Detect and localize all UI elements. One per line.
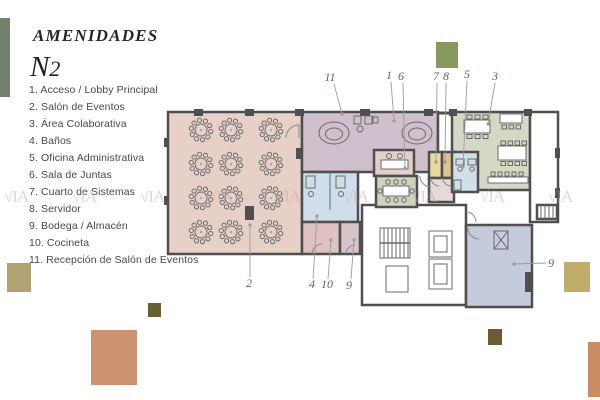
legend-item-8: 8. Servidor <box>29 201 198 218</box>
level-label: N2 <box>30 53 158 82</box>
leader-line <box>514 263 546 264</box>
elevator <box>429 231 452 257</box>
wall-pillar <box>424 109 433 116</box>
chair <box>516 125 521 129</box>
wc-stall <box>306 176 315 188</box>
door-arc <box>312 244 322 254</box>
plan-label-7: 7 <box>433 69 440 83</box>
stool <box>512 172 516 176</box>
lounge-seat <box>373 117 378 123</box>
flyer-page: AMENIDADES N2 1. Acceso / Lobby Principa… <box>0 0 600 400</box>
reception-desk <box>319 122 349 144</box>
storage-block <box>525 272 532 292</box>
room-pasillo-derecho <box>530 112 558 222</box>
leader-dot <box>248 223 251 226</box>
door-arc <box>468 228 479 239</box>
leader-dot <box>443 160 446 163</box>
legend-item-1: 1. Acceso / Lobby Principal <box>29 82 198 99</box>
leader-line <box>351 240 354 279</box>
plan-label-6: 6 <box>398 69 404 83</box>
counter <box>488 177 528 183</box>
door-arc <box>420 176 431 187</box>
stool <box>519 172 523 176</box>
leader-line <box>334 84 342 114</box>
via-watermark: √IA <box>4 187 30 206</box>
chair <box>509 125 514 129</box>
leader-line <box>391 82 394 121</box>
banquet-table <box>219 186 243 210</box>
level-main: N <box>30 51 49 83</box>
conference-table <box>383 186 409 196</box>
leader-line <box>463 81 467 167</box>
legend-item-11: 11. Recepción de Salón de Eventos <box>29 252 198 269</box>
plan-label-4: 4 <box>309 277 315 291</box>
chair <box>483 135 488 139</box>
room-area-colaborativa <box>452 112 530 190</box>
chair <box>501 141 506 145</box>
wc-stall <box>336 176 345 188</box>
room-sala-de-juntas <box>376 176 417 207</box>
reception-desk <box>402 122 432 144</box>
chair <box>378 189 383 194</box>
decor-square <box>436 42 458 68</box>
room-nucleo-servicios <box>362 205 466 305</box>
decor-square <box>0 18 10 97</box>
page-title: AMENIDADES <box>33 26 158 46</box>
leader-line <box>488 83 495 124</box>
room-escalera-derecha <box>537 205 557 219</box>
legend-item-3: 3. Área Colaborativa <box>29 116 198 133</box>
room-recepcion-salon-eventos <box>302 112 438 172</box>
chair <box>475 135 480 139</box>
work-table <box>498 146 526 160</box>
lobby-desk <box>381 160 408 169</box>
chair <box>522 162 527 166</box>
plan-label-8: 8 <box>443 69 449 83</box>
plan-label-5: 5 <box>464 67 470 81</box>
chair <box>508 162 513 166</box>
wall-pillar <box>555 188 560 198</box>
chair <box>501 162 506 166</box>
room-servidor <box>442 152 454 178</box>
legend-item-4: 4. Baños <box>29 133 198 150</box>
header: AMENIDADES N2 <box>33 26 158 82</box>
cabinet <box>454 180 461 190</box>
legend-item-7: 7. Cuarto de Sistemas <box>29 184 198 201</box>
decor-square <box>7 263 31 292</box>
decor-square <box>564 262 590 292</box>
door-arc <box>443 178 451 186</box>
chair <box>394 180 399 185</box>
leader-dot <box>461 165 464 168</box>
legend-item-5: 5. Oficina Administrativa <box>29 150 198 167</box>
service-room <box>386 266 408 292</box>
desk <box>456 159 464 165</box>
stairs <box>380 228 410 258</box>
level-sub: 2 <box>49 56 60 81</box>
banquet-table <box>259 118 283 142</box>
stool <box>498 172 502 176</box>
work-table <box>464 120 490 133</box>
lounge-seat <box>365 116 372 124</box>
leader-dot <box>315 214 318 217</box>
door-arc <box>431 178 439 186</box>
wall-pillar <box>295 109 304 116</box>
leader-dot <box>329 238 332 241</box>
wall-pillar <box>360 109 370 116</box>
wall-pillar <box>449 109 457 116</box>
leader-dot <box>352 238 355 241</box>
banquet-table <box>259 152 283 176</box>
room-lobby <box>374 150 414 176</box>
via-watermark: √IA <box>276 187 302 206</box>
plan-label-10: 10 <box>321 277 333 291</box>
via-watermark: √IA <box>412 187 438 206</box>
lounge-seat <box>354 116 361 124</box>
wall-pillar <box>245 206 254 220</box>
elevator <box>429 259 452 289</box>
leader-dot <box>340 112 343 115</box>
plan-label-3: 3 <box>491 69 498 83</box>
chair <box>402 198 407 203</box>
banquet-table <box>219 118 243 142</box>
chair <box>394 198 399 203</box>
chair <box>402 180 407 185</box>
leader-dot <box>512 262 515 265</box>
via-watermark: √IA <box>208 187 234 206</box>
legend-item-9: 9. Bodega / Almacén <box>29 218 198 235</box>
leader-line <box>445 83 446 162</box>
chair <box>386 180 391 185</box>
wall-pillar <box>524 109 532 116</box>
via-watermark: √IA <box>480 187 506 206</box>
chair <box>475 115 480 119</box>
wall-pillar <box>245 109 254 116</box>
decor-square <box>148 303 161 317</box>
chair <box>410 189 415 194</box>
shelf <box>494 231 508 249</box>
plan-label-1: 1 <box>386 68 392 82</box>
door-arc <box>466 212 476 222</box>
door-arc <box>286 125 299 138</box>
stool <box>505 172 509 176</box>
plan-label-9: 9 <box>548 256 554 270</box>
room-cocineta <box>302 222 340 254</box>
via-watermark: √IA <box>344 187 370 206</box>
chair <box>502 125 507 129</box>
leader-dot <box>434 160 437 163</box>
plan-label-9: 9 <box>346 278 352 292</box>
leader-line <box>403 83 405 168</box>
plan-label-2: 2 <box>246 276 252 290</box>
chair <box>483 115 488 119</box>
leader-dot <box>403 166 406 169</box>
room-cuarto-sistemas <box>429 152 442 178</box>
wall-pillar <box>555 148 560 158</box>
legend-item-10: 10. Cocineta <box>29 235 198 252</box>
decor-square <box>91 330 137 385</box>
leader-line <box>436 83 437 162</box>
lounge-table <box>357 126 363 132</box>
room-banos <box>302 172 358 222</box>
room-bodega-chica <box>340 222 360 254</box>
chair <box>508 141 513 145</box>
leader-line <box>328 240 331 279</box>
chair <box>515 141 520 145</box>
legend-item-2: 2. Salón de Eventos <box>29 99 198 116</box>
decor-square <box>488 329 502 345</box>
plan-label-11: 11 <box>324 70 335 84</box>
leader-line <box>313 216 317 279</box>
work-desk <box>500 114 522 123</box>
wall-pillar <box>296 148 303 159</box>
banquet-table <box>259 186 283 210</box>
room-oficina-administrativa <box>452 152 478 192</box>
door-arc <box>346 245 355 254</box>
leader-dot <box>392 119 395 122</box>
stool <box>491 172 495 176</box>
banquet-table <box>259 220 283 244</box>
room-wc-chico <box>429 178 454 202</box>
room-bodega-almacen <box>466 225 532 307</box>
decor-square <box>588 342 600 397</box>
banquet-table <box>219 220 243 244</box>
banquet-table <box>219 152 243 176</box>
leader-dot <box>486 122 489 125</box>
legend-item-6: 6. Sala de Juntas <box>29 167 198 184</box>
chair <box>386 198 391 203</box>
chair <box>467 115 472 119</box>
desk <box>468 159 476 165</box>
chair <box>467 135 472 139</box>
furniture-layer <box>306 114 553 292</box>
chair <box>515 162 520 166</box>
amenities-legend: 1. Acceso / Lobby Principal 2. Salón de … <box>29 82 198 269</box>
chair <box>522 141 527 145</box>
via-watermark: √IA <box>548 187 574 206</box>
